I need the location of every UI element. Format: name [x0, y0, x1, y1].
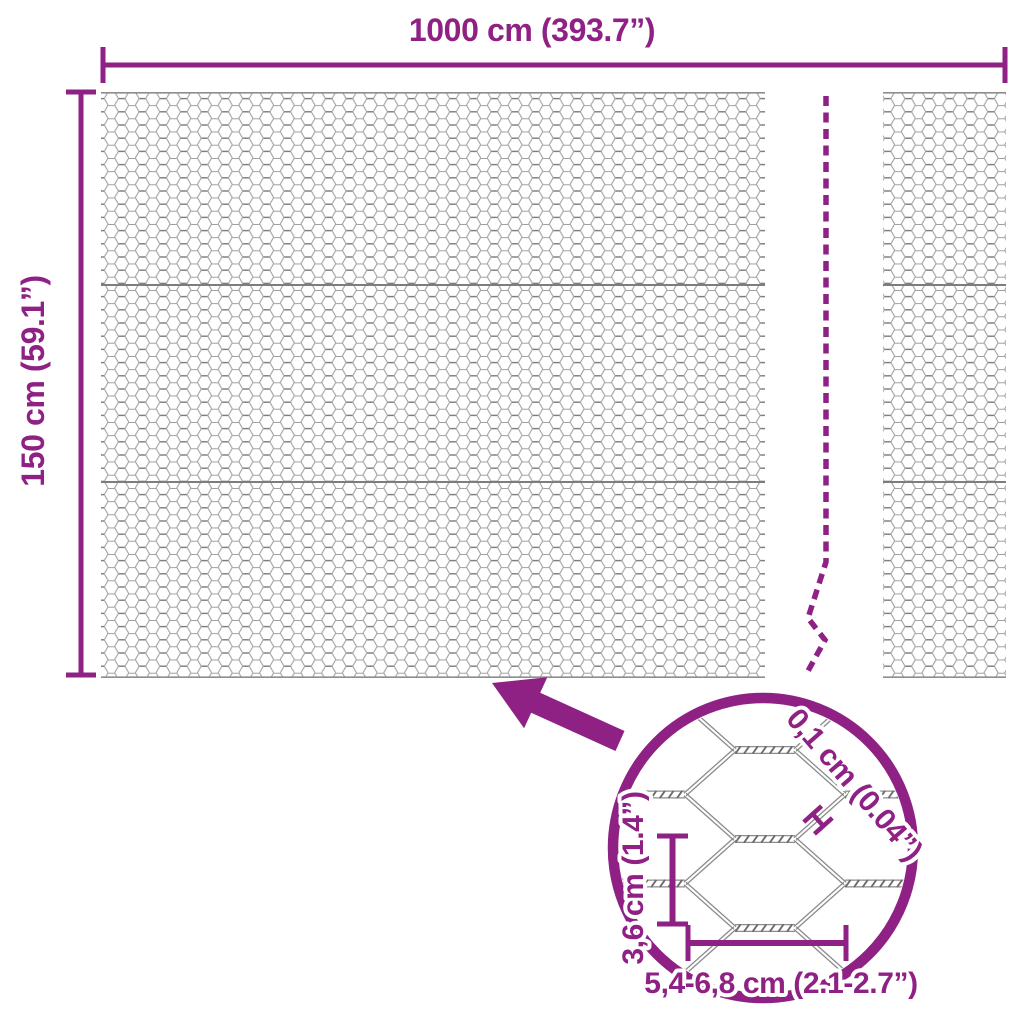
zoom-arrow-icon: [492, 677, 625, 751]
height-dimension: 150 cm (59.1”): [15, 92, 96, 675]
break-line-icon: [808, 96, 826, 671]
mesh-panel-right: [883, 92, 1006, 678]
height-label: 150 cm (59.1”): [15, 275, 51, 486]
width-dimension: 1000 cm (393.7”): [103, 12, 1005, 83]
cell-width-label: 5,4-6,8 cm (2.1-2.7”): [644, 967, 917, 1000]
width-label: 1000 cm (393.7”): [409, 12, 655, 48]
product-dimension-diagram: { "dimensions": { "width_label": "1000 c…: [0, 0, 1024, 1024]
mesh-pattern-left: [101, 92, 765, 678]
diagram-canvas: 1000 cm (393.7”) 150 cm (59.1”) 0,1 cm (…: [0, 0, 1024, 1024]
mesh-pattern-right: [883, 92, 1006, 678]
magnifier-circle-icon: [613, 698, 913, 998]
cell-height-label: 3,6 cm (1.4”): [617, 791, 650, 964]
mesh-panel-left: [101, 92, 765, 678]
